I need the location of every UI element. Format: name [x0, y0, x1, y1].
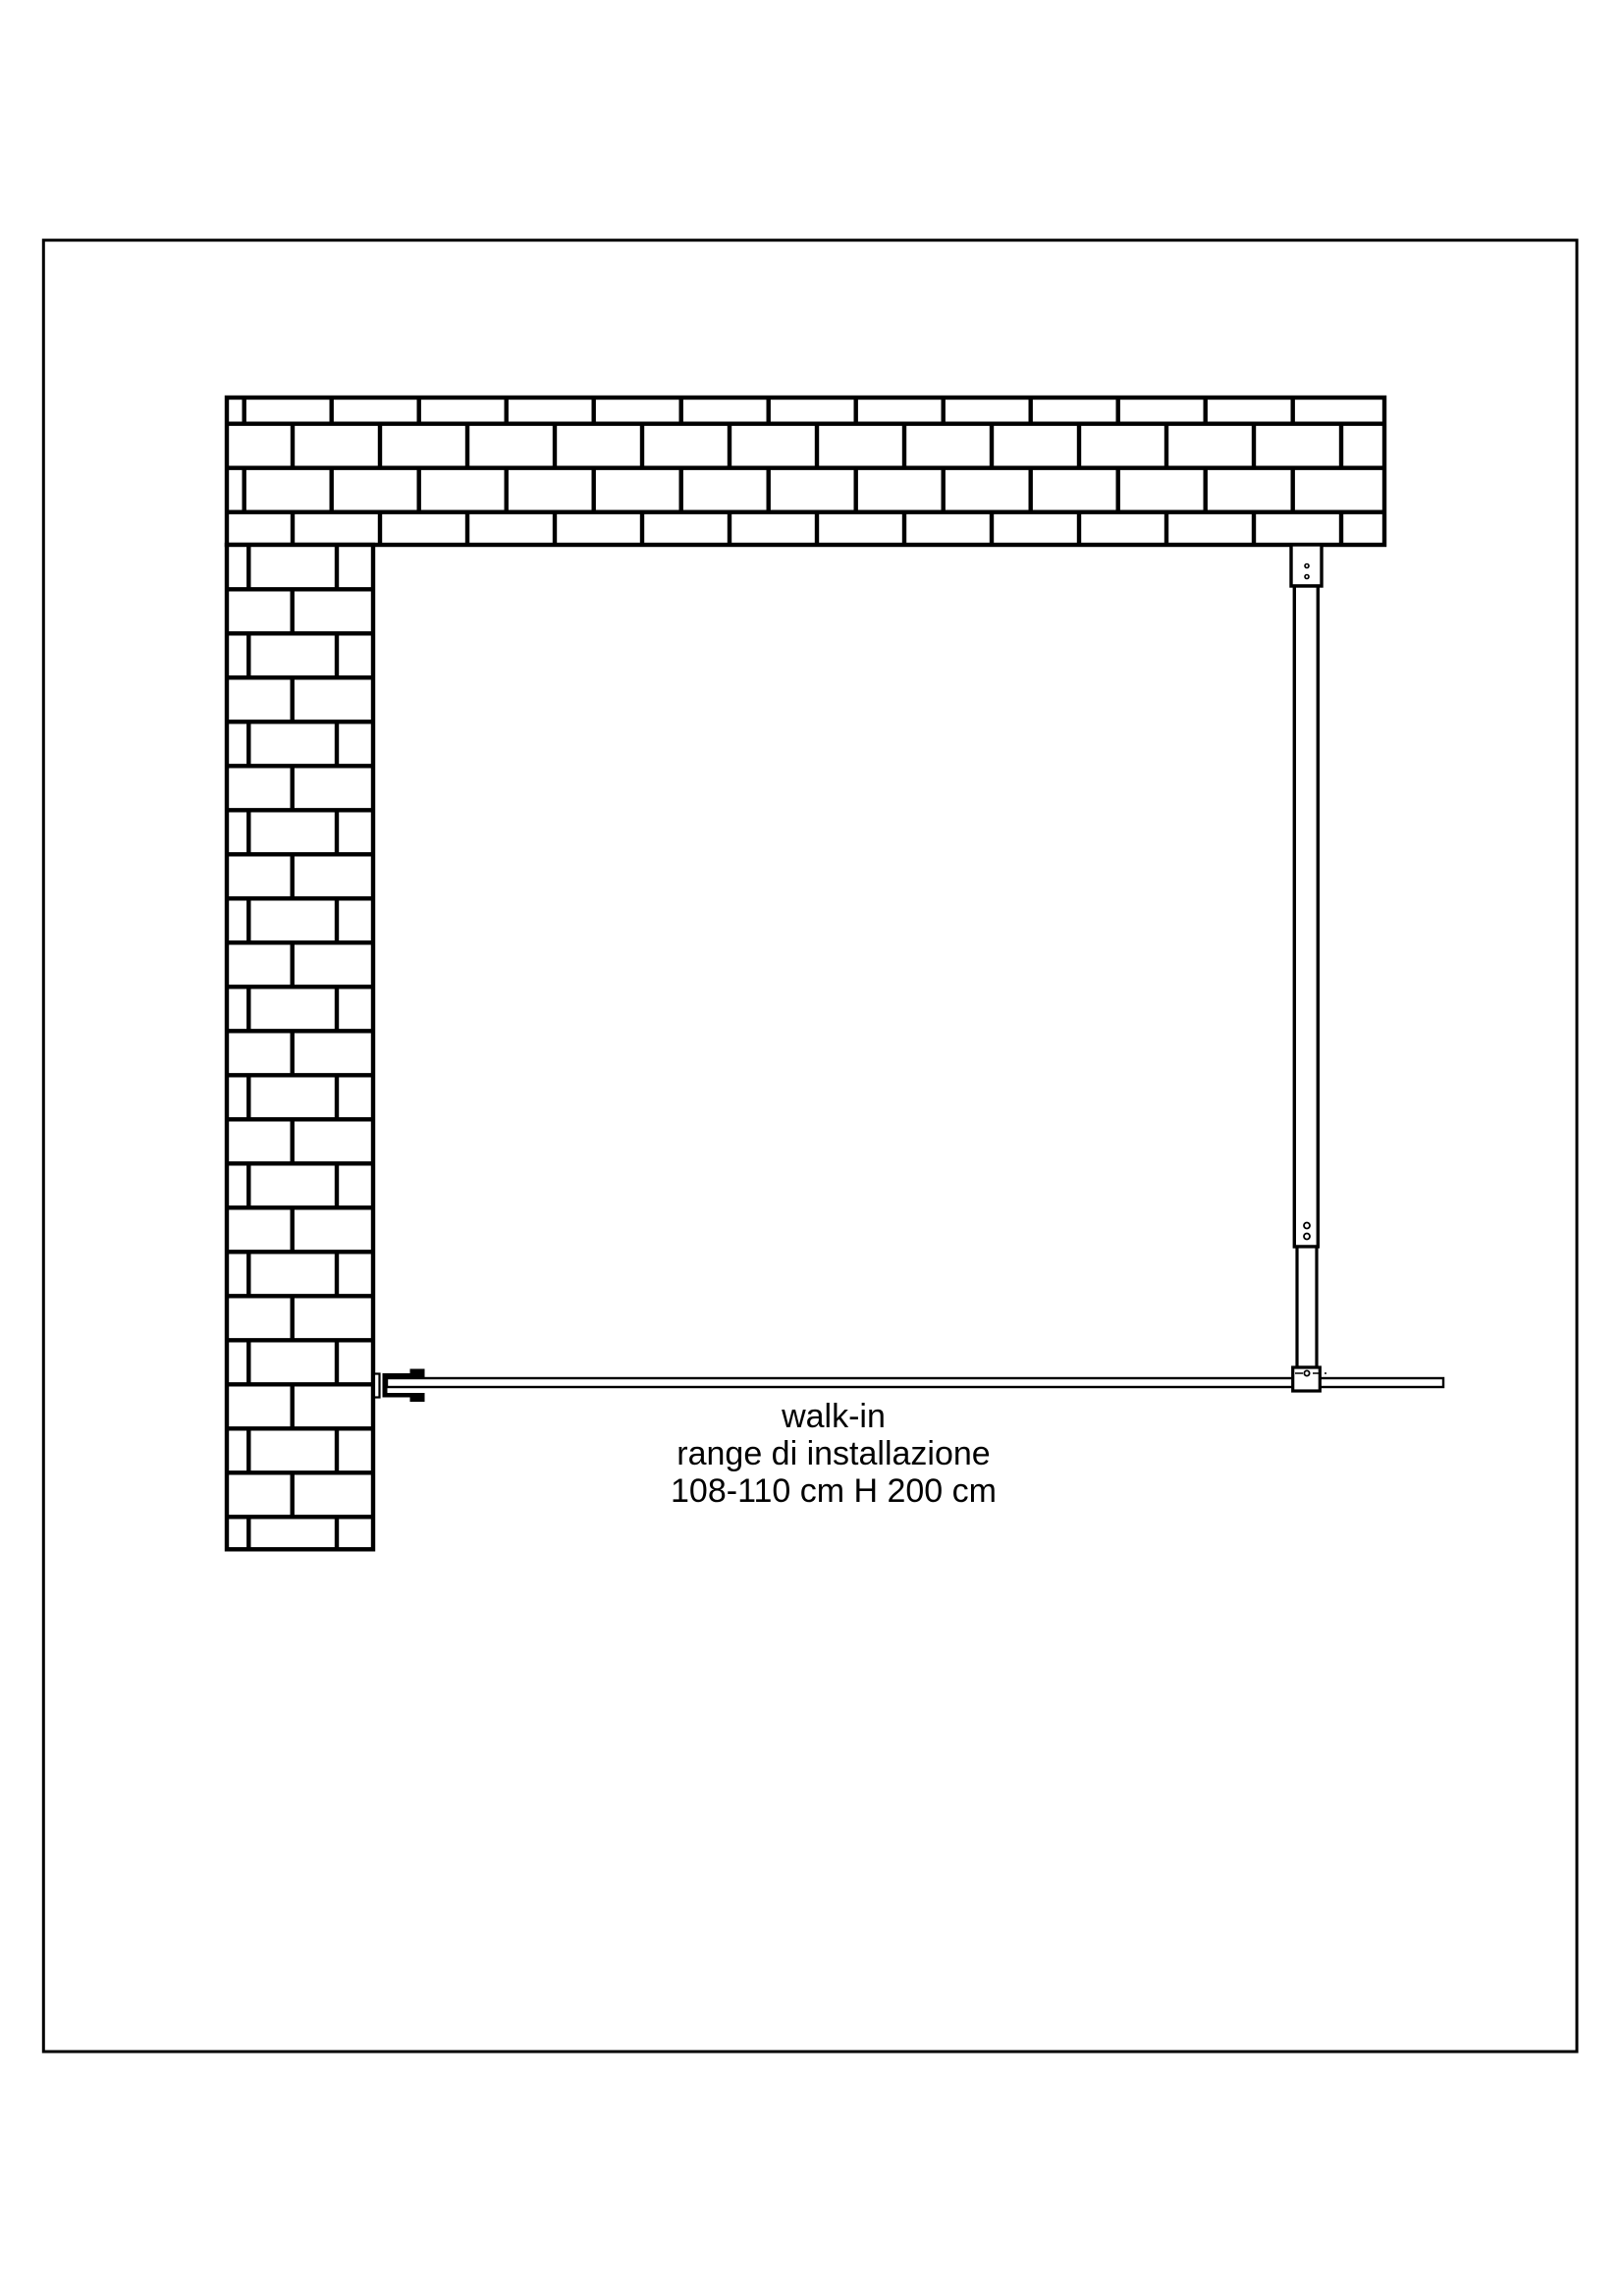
channel-top-jaw	[383, 1373, 425, 1378]
mount-screw-hole	[1305, 575, 1309, 579]
adjustment-hole	[1304, 1223, 1310, 1229]
product-label: walk-in	[781, 1398, 886, 1435]
clamp-screw-hole	[1304, 1370, 1309, 1375]
dimensions-label: 108-110 cm H 200 cm	[671, 1472, 997, 1510]
stabilizer-bar	[1291, 545, 1328, 1391]
adjustment-hole	[1304, 1234, 1310, 1240]
channel-bottom-jaw	[383, 1393, 425, 1398]
lower-tube	[1297, 1247, 1317, 1367]
channel-bottom-lip	[410, 1398, 425, 1403]
mount-screw-hole	[1305, 564, 1309, 568]
channel-top-lip	[410, 1369, 425, 1374]
installation-diagram: walk-in range di installazione 108-110 c…	[0, 0, 1623, 2296]
range-label: range di installazione	[676, 1435, 990, 1472]
glass-panel	[387, 1378, 1443, 1387]
annotation-text: walk-in range di installazione 108-110 c…	[671, 1398, 997, 1510]
upper-tube	[1294, 586, 1318, 1247]
brick-band	[227, 545, 373, 1549]
wall-plate	[374, 1374, 380, 1398]
brick-band	[227, 398, 1384, 545]
